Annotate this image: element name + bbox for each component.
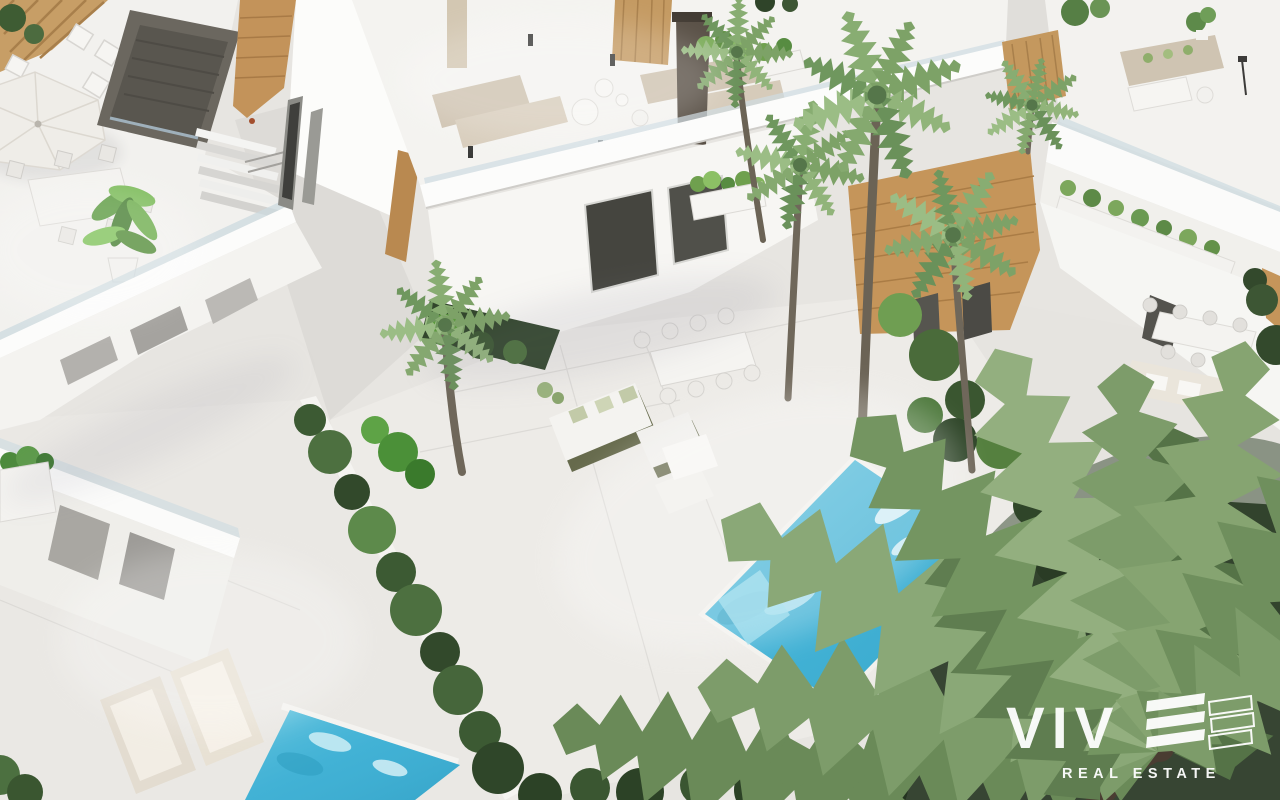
render-canvas: VIV REAL ESTATE xyxy=(0,0,1280,800)
logo-wordmark: VIV xyxy=(1006,696,1121,761)
villa-render: VIV REAL ESTATE xyxy=(0,0,1280,800)
logo-tagline: REAL ESTATE xyxy=(1062,766,1221,782)
logo-e-bars xyxy=(1146,693,1205,748)
